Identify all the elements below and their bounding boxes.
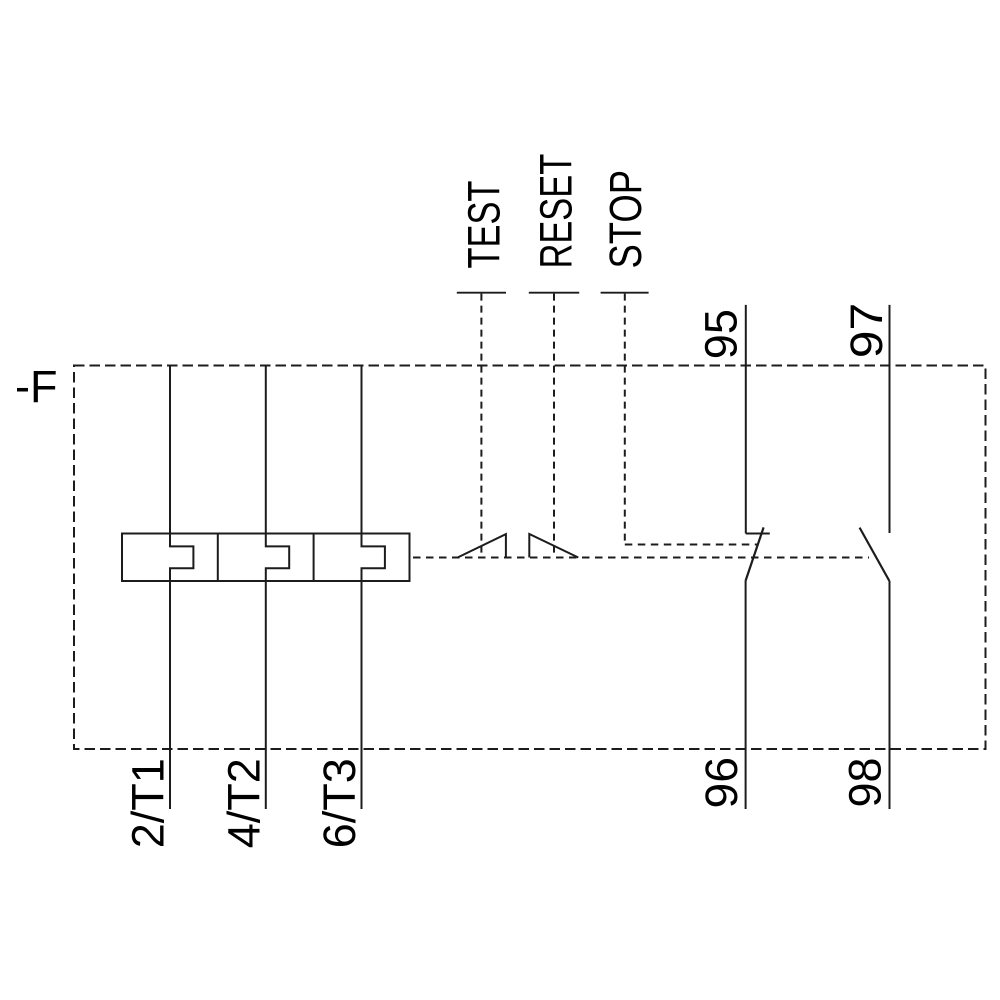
svg-text:4/T2: 4/T2: [218, 758, 269, 848]
svg-text:6/T3: 6/T3: [314, 758, 365, 848]
svg-text:98: 98: [840, 758, 891, 808]
svg-text:TEST: TEST: [460, 181, 509, 269]
svg-text:96: 96: [696, 757, 747, 809]
svg-text:2/T1: 2/T1: [123, 758, 174, 848]
svg-text:RESET: RESET: [532, 154, 581, 269]
svg-text:STOP: STOP: [600, 170, 651, 269]
svg-text:-F: -F: [15, 361, 57, 412]
svg-text:97: 97: [841, 303, 892, 359]
svg-text:95: 95: [696, 309, 747, 359]
